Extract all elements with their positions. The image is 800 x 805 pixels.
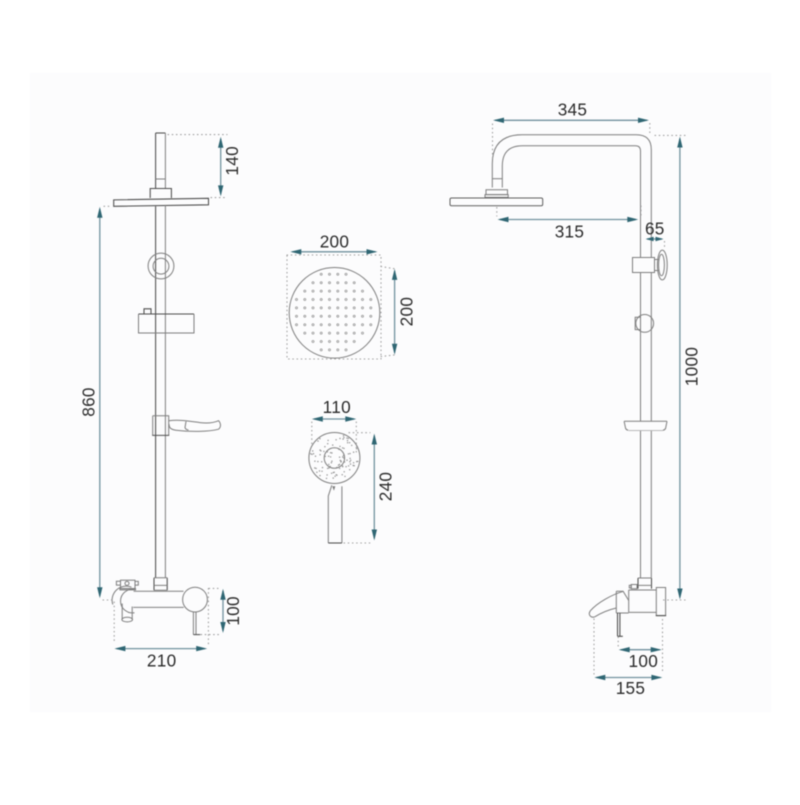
svg-text:110: 110 <box>323 397 351 417</box>
svg-text:240: 240 <box>376 472 396 502</box>
svg-text:100: 100 <box>223 596 243 626</box>
svg-text:860: 860 <box>78 387 98 417</box>
svg-text:200: 200 <box>397 297 417 327</box>
svg-text:155: 155 <box>616 678 646 698</box>
svg-text:140: 140 <box>222 146 242 176</box>
svg-text:65: 65 <box>645 219 665 239</box>
svg-text:210: 210 <box>147 651 177 671</box>
svg-text:315: 315 <box>555 221 585 241</box>
svg-text:345: 345 <box>558 100 588 120</box>
svg-text:200: 200 <box>320 231 350 251</box>
svg-text:1000: 1000 <box>682 347 702 386</box>
svg-text:100: 100 <box>629 651 659 671</box>
